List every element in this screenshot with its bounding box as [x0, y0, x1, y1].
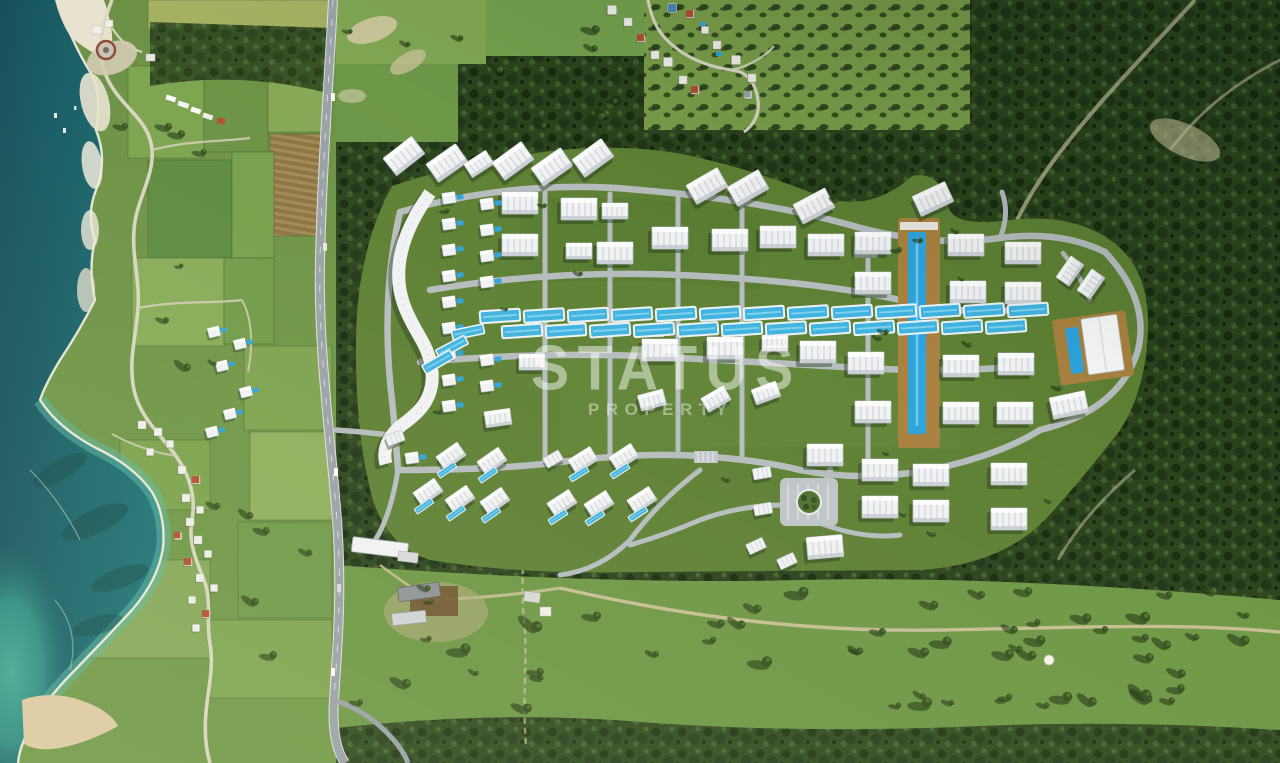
scene-svg: [0, 0, 1280, 763]
glow-overlay: [0, 0, 1280, 763]
aerial-photo-container: STATUS PROPERTY: [0, 0, 1280, 763]
